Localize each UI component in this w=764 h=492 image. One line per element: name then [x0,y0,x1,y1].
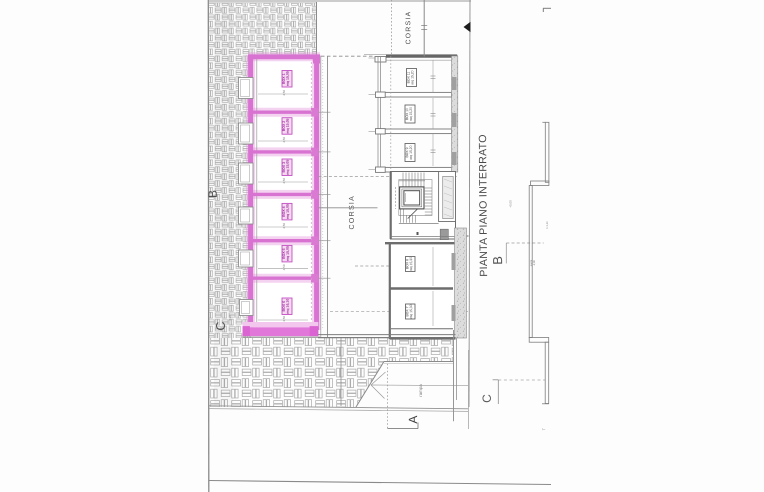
svg-text:mq 15,05: mq 15,05 [286,118,290,133]
svg-text:mq 15,30: mq 15,30 [409,257,413,271]
svg-text:mq 15,05: mq 15,05 [286,71,290,86]
svg-text:CORSIA: CORSIA [349,195,356,230]
svg-text:4,50: 4,50 [282,90,286,96]
svg-text:mq 15,30: mq 15,30 [409,304,413,318]
svg-text:4,50: 4,50 [282,223,286,229]
svg-text:mq 15,20: mq 15,20 [410,70,414,84]
svg-text:4,50: 4,50 [282,137,286,143]
svg-text:mq 15,20: mq 15,20 [409,107,413,121]
svg-text:B: B [490,256,505,265]
svg-text:C: C [214,321,228,330]
svg-text:4,50: 4,50 [282,264,286,270]
svg-text:3.20: 3.20 [228,315,232,321]
svg-text:4,50: 4,50 [282,178,286,184]
svg-text:h 2,40: h 2,40 [545,221,549,229]
svg-text:mq 15,05: mq 15,05 [286,160,290,175]
svg-text:A: A [406,416,420,424]
svg-text:4,50: 4,50 [282,316,286,322]
svg-text:+0,00: +0,00 [508,200,512,208]
svg-text:mq 15,05: mq 15,05 [286,204,290,219]
svg-text:mq 15,05: mq 15,05 [286,246,290,261]
svg-text:B: B [206,190,220,198]
svg-text:rampa: rampa [418,384,423,397]
svg-text:mq 15,20: mq 15,20 [409,145,413,159]
svg-text:CORSIA: CORSIA [405,11,412,45]
svg-text:C: C [480,394,494,403]
svg-text:PIANTA PIANO INTERRATO: PIANTA PIANO INTERRATO [477,134,490,277]
svg-text:mq 16,10: mq 16,10 [286,299,290,314]
